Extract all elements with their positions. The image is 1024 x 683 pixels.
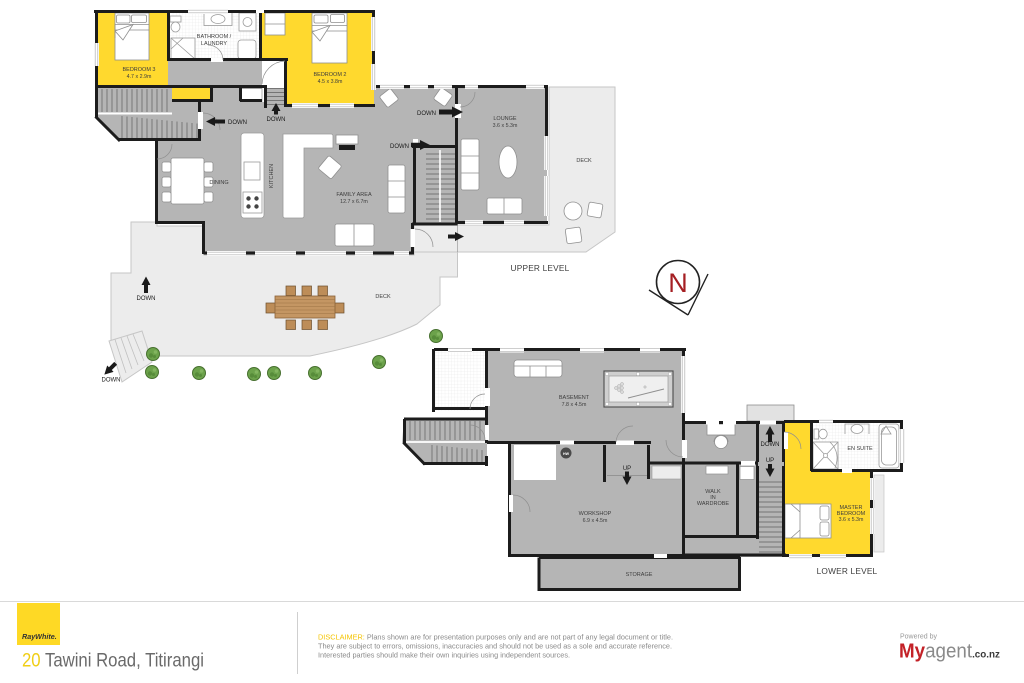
svg-text:DOWN: DOWN bbox=[390, 144, 409, 150]
svg-text:UP: UP bbox=[623, 466, 631, 472]
svg-text:12.7 x 6.7m: 12.7 x 6.7m bbox=[340, 199, 368, 205]
svg-text:LAUNDRY: LAUNDRY bbox=[201, 41, 228, 47]
svg-text:7.8 x 4.5m: 7.8 x 4.5m bbox=[562, 402, 587, 408]
svg-text:6.9 x 4.5m: 6.9 x 4.5m bbox=[583, 518, 608, 524]
svg-text:DOWN: DOWN bbox=[417, 111, 436, 117]
svg-text:They are subject to errors, om: They are subject to errors, omissions, i… bbox=[318, 642, 672, 651]
svg-text:Myagent.co.nz: Myagent.co.nz bbox=[899, 641, 1000, 663]
svg-text:DINING: DINING bbox=[209, 180, 228, 186]
svg-text:FAMILY AREA: FAMILY AREA bbox=[336, 192, 372, 198]
svg-text:BATHROOM /: BATHROOM / bbox=[197, 34, 232, 40]
svg-text:BEDROOM 3: BEDROOM 3 bbox=[122, 67, 155, 73]
svg-text:STORAGE: STORAGE bbox=[626, 572, 653, 578]
svg-text:BASEMENT: BASEMENT bbox=[559, 395, 590, 401]
svg-text:DOWN: DOWN bbox=[102, 378, 121, 384]
svg-text:4.7 x 2.9m: 4.7 x 2.9m bbox=[127, 74, 152, 80]
svg-text:DOWN: DOWN bbox=[137, 296, 156, 302]
svg-text:BEDROOM 2: BEDROOM 2 bbox=[313, 72, 346, 78]
svg-text:LOUNGE: LOUNGE bbox=[493, 116, 517, 122]
svg-text:WARDROBE: WARDROBE bbox=[697, 501, 730, 507]
svg-text:UP: UP bbox=[766, 458, 774, 464]
svg-text:DECK: DECK bbox=[576, 158, 592, 164]
svg-text:DOWN: DOWN bbox=[267, 117, 286, 123]
svg-text:DISCLAIMER: Plans shown are fo: DISCLAIMER: Plans shown are for presenta… bbox=[318, 633, 673, 642]
svg-text:DOWN: DOWN bbox=[228, 120, 247, 126]
svg-text:DECK: DECK bbox=[375, 294, 391, 300]
svg-text:RayWhite.: RayWhite. bbox=[22, 632, 57, 641]
svg-text:Powered by: Powered by bbox=[900, 634, 937, 641]
svg-text:KITCHEN: KITCHEN bbox=[269, 164, 275, 188]
svg-text:WORKSHOP: WORKSHOP bbox=[579, 511, 612, 517]
svg-text:EN SUITE: EN SUITE bbox=[847, 446, 873, 452]
svg-text:20 Tawini Road, Titirangi: 20 Tawini Road, Titirangi bbox=[22, 650, 204, 672]
svg-text:4.5 x 3.8m: 4.5 x 3.8m bbox=[318, 79, 343, 85]
svg-text:3.6 x 5.3m: 3.6 x 5.3m bbox=[493, 123, 518, 129]
svg-text:UPPER LEVEL: UPPER LEVEL bbox=[511, 263, 570, 273]
svg-text:Interested parties should make: Interested parties should make their own… bbox=[318, 651, 570, 660]
svg-text:DOWN: DOWN bbox=[761, 442, 780, 448]
svg-text:HW: HW bbox=[563, 452, 570, 456]
svg-text:3.6 x 5.3m: 3.6 x 5.3m bbox=[839, 517, 864, 523]
svg-text:LOWER LEVEL: LOWER LEVEL bbox=[817, 566, 878, 576]
svg-text:N: N bbox=[668, 268, 688, 298]
